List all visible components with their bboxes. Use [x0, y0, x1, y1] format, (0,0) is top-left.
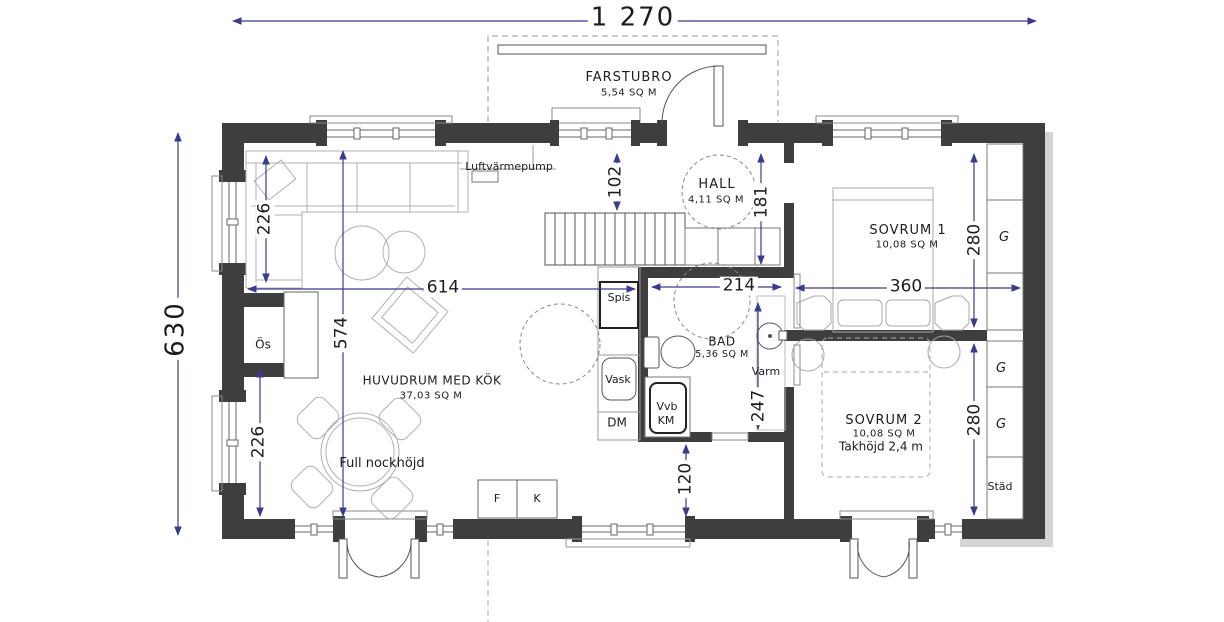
fireplace	[244, 292, 318, 378]
bed-sovrum1	[797, 188, 969, 332]
fireplace-label: Ös	[255, 338, 271, 351]
room-farstubro-name: FARSTUBRO	[585, 71, 672, 85]
dim-hall-depth: 181	[753, 183, 772, 221]
room-sovrum1-name: SOVRUM 1	[869, 224, 946, 238]
dim-passage: 120	[677, 460, 696, 498]
hall-bench	[685, 228, 780, 265]
sofa	[246, 151, 468, 288]
wardrobe-label-2: G	[996, 362, 1006, 376]
dim-center-vertical: 574	[333, 314, 352, 352]
side-tables	[335, 226, 425, 280]
wardrobe-label-1: G	[999, 231, 1009, 245]
room-hall-area: 4,11 SQ M	[688, 195, 744, 206]
fridge-label: K	[533, 493, 540, 505]
dim-stair-offset: 102	[607, 163, 626, 201]
dim-sovrum1-depth: 280	[966, 221, 985, 259]
appliance-boxes	[478, 480, 557, 518]
dim-bad-depth: 247	[750, 387, 769, 425]
dim-sovrum1-width: 360	[887, 278, 925, 297]
washer-label: KM	[658, 415, 675, 427]
heat-pump-label: Luftvärmepump	[465, 161, 553, 173]
wardrobe-label-3: G	[996, 418, 1006, 432]
floor-plan: 1 270 630 226 574 226 614 102 181 214 36…	[0, 0, 1224, 622]
ridge-height-label: Full nockhöjd	[339, 457, 424, 471]
room-huvudrum-area: 37,03 SQ M	[400, 391, 463, 402]
room-bad-area: 5,36 SQ M	[695, 350, 748, 360]
room-huvudrum-name: HUVUDRUM MED KÖK	[363, 374, 502, 387]
dim-living-width: 614	[424, 279, 462, 298]
dim-bad-width: 214	[720, 277, 758, 296]
room-bad-name: BAD	[708, 335, 735, 348]
dim-overall-width: 1 270	[588, 4, 678, 33]
french-door-left	[333, 511, 427, 578]
room-sovrum1-area: 10,08 SQ M	[876, 240, 939, 251]
bed-sovrum2	[792, 336, 960, 477]
dim-left-upper: 226	[256, 200, 275, 238]
dishwasher-label: DM	[607, 416, 627, 429]
room-sovrum2-area: 10,08 SQ M	[853, 429, 916, 440]
dim-left-lower: 226	[250, 423, 269, 461]
room-hall-name: HALL	[698, 178, 735, 192]
room-sovrum2-name: SOVRUM 2	[845, 414, 922, 428]
toilet	[644, 336, 695, 368]
stairs	[545, 213, 685, 265]
stove-label: Spis	[608, 292, 631, 304]
dim-sovrum2-depth: 280	[966, 401, 985, 439]
freezer-label: F	[494, 493, 500, 505]
wardrobes	[987, 144, 1023, 519]
porch-step	[566, 539, 690, 547]
room-sovrum2-ceiling: Takhöjd 2,4 m	[839, 440, 923, 453]
dim-overall-height: 630	[162, 298, 191, 360]
sink-label: Vask	[605, 374, 631, 386]
varm-label: Varm	[752, 366, 780, 378]
water-heater-label: Vvb	[656, 401, 677, 413]
room-farstubro-area: 5,54 SQ M	[601, 88, 657, 99]
cleaning-closet-label: Städ	[987, 481, 1012, 493]
